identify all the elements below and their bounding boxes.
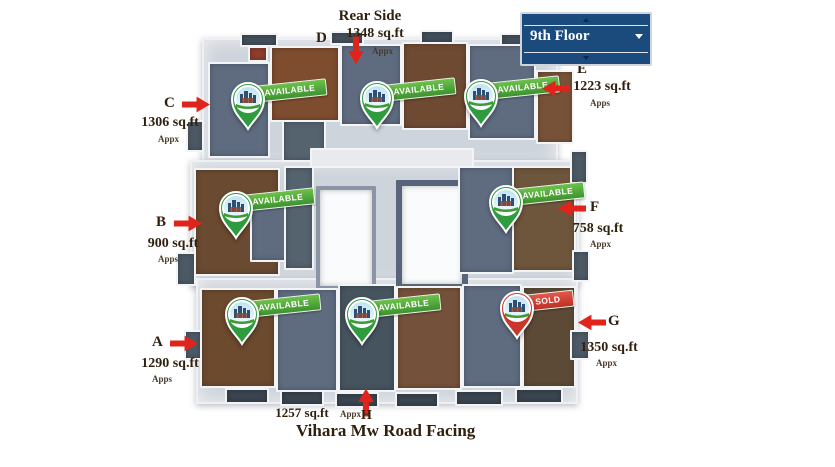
map-pin-icon	[497, 290, 537, 340]
scroll-down-icon[interactable]	[583, 56, 589, 60]
road-facing-label: Vihara Mw Road Facing	[296, 421, 475, 441]
unit-c-sqft: 1306 sq.ft	[130, 115, 210, 131]
chevron-down-icon[interactable]	[635, 34, 643, 39]
unit-d-approx: Appx	[372, 46, 393, 56]
unit-a-letter: A	[152, 334, 163, 351]
unit-c-letter: C	[164, 95, 175, 112]
balcony-block	[176, 252, 196, 286]
unit-g-letter: G	[608, 313, 620, 330]
unit-f-letter: F	[590, 199, 599, 216]
unit-b-sqft: 900 sq.ft	[134, 236, 212, 252]
unit-d-letter: D	[316, 30, 327, 47]
map-pin-icon	[342, 296, 382, 346]
unit-h-sqft: 1257 sq.ft	[264, 405, 340, 421]
unit-g-sqft: 1350 sq.ft	[566, 340, 652, 356]
rear-side-label: Rear Side	[315, 8, 425, 25]
divider	[524, 25, 648, 26]
unit-f-sqft: 758 sq.ft	[562, 221, 634, 237]
unit-h-approx: Appx	[340, 409, 361, 419]
unit-e-sqft: 1223 sq.ft	[566, 79, 638, 95]
unit-e-approx: Apps	[590, 98, 610, 108]
scroll-up-icon[interactable]	[583, 18, 589, 22]
balcony-block	[570, 150, 588, 184]
room-block	[240, 33, 278, 47]
floor-selector[interactable]: 9th Floor	[520, 12, 652, 66]
floor-selector-value: 9th Floor	[530, 28, 590, 45]
room-block	[515, 388, 563, 404]
map-pin-icon	[461, 78, 501, 128]
room-block	[455, 390, 503, 406]
room-block	[225, 388, 269, 404]
unit-c-approx: Appx	[158, 134, 179, 144]
unit-marker-h[interactable]: AVAILABLE	[342, 296, 452, 348]
unit-marker-d[interactable]: AVAILABLE	[357, 80, 467, 132]
floor-plan-page: 9th Floor AVAILABLE AVAILABLE AVAILABLE …	[0, 0, 835, 467]
unit-a-approx: Apps	[152, 374, 172, 384]
corridor	[310, 148, 474, 168]
floor-plan-image	[0, 0, 835, 467]
unit-f-approx: Appx	[590, 239, 611, 249]
unit-marker-b[interactable]: AVAILABLE	[216, 190, 326, 242]
unit-a-sqft: 1290 sq.ft	[128, 356, 212, 372]
map-pin-icon	[486, 184, 526, 234]
unit-g-approx: Appx	[596, 358, 617, 368]
divider	[524, 52, 648, 53]
unit-marker-c[interactable]: AVAILABLE	[228, 81, 338, 133]
unit-b-letter: B	[156, 214, 166, 231]
unit-b-approx: Apps	[158, 254, 178, 264]
map-pin-icon	[216, 190, 256, 240]
map-pin-icon	[357, 80, 397, 130]
balcony-block	[572, 250, 590, 282]
room-block	[395, 392, 439, 408]
unit-marker-a[interactable]: AVAILABLE	[222, 296, 332, 348]
unit-d-sqft: 1348 sq.ft	[320, 26, 430, 42]
room-block	[248, 46, 268, 62]
map-pin-icon	[228, 81, 268, 131]
room-block	[280, 390, 324, 406]
map-pin-icon	[222, 296, 262, 346]
